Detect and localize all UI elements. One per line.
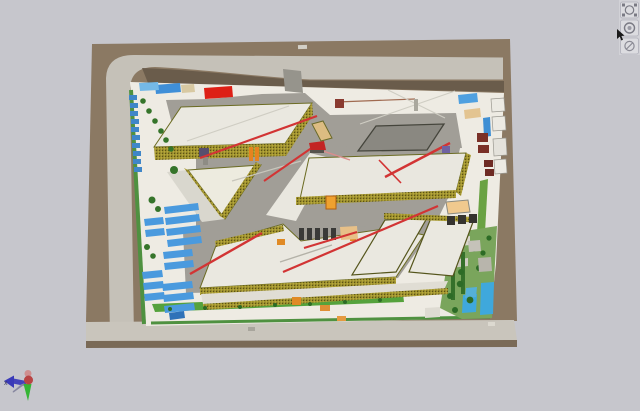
svg-text:x: x: [4, 380, 8, 387]
